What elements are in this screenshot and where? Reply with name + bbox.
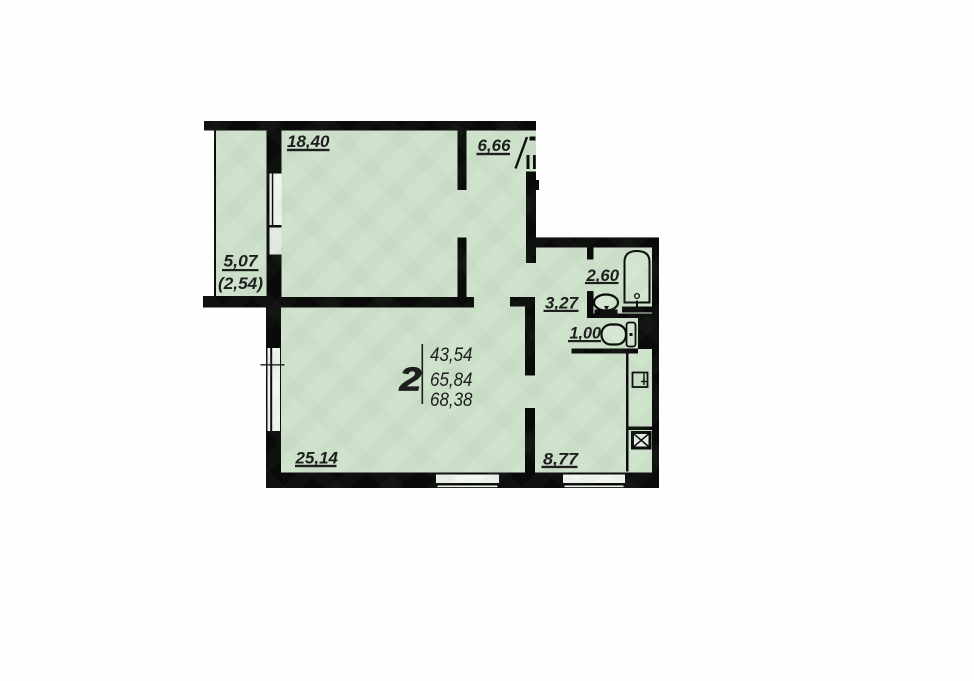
svg-text:68,38: 68,38	[430, 389, 473, 411]
svg-text:6,66: 6,66	[478, 136, 512, 155]
svg-text:(2,54): (2,54)	[218, 274, 263, 293]
svg-text:18,40: 18,40	[287, 132, 330, 151]
svg-text:43,54: 43,54	[430, 344, 473, 366]
svg-text:65,84: 65,84	[430, 369, 473, 391]
svg-text:8,77: 8,77	[543, 450, 580, 469]
svg-text:5,07: 5,07	[224, 251, 260, 270]
svg-text:1,00: 1,00	[570, 323, 602, 342]
svg-text:2: 2	[398, 361, 422, 398]
svg-text:25,14: 25,14	[295, 448, 339, 467]
svg-text:3,27: 3,27	[545, 294, 580, 313]
